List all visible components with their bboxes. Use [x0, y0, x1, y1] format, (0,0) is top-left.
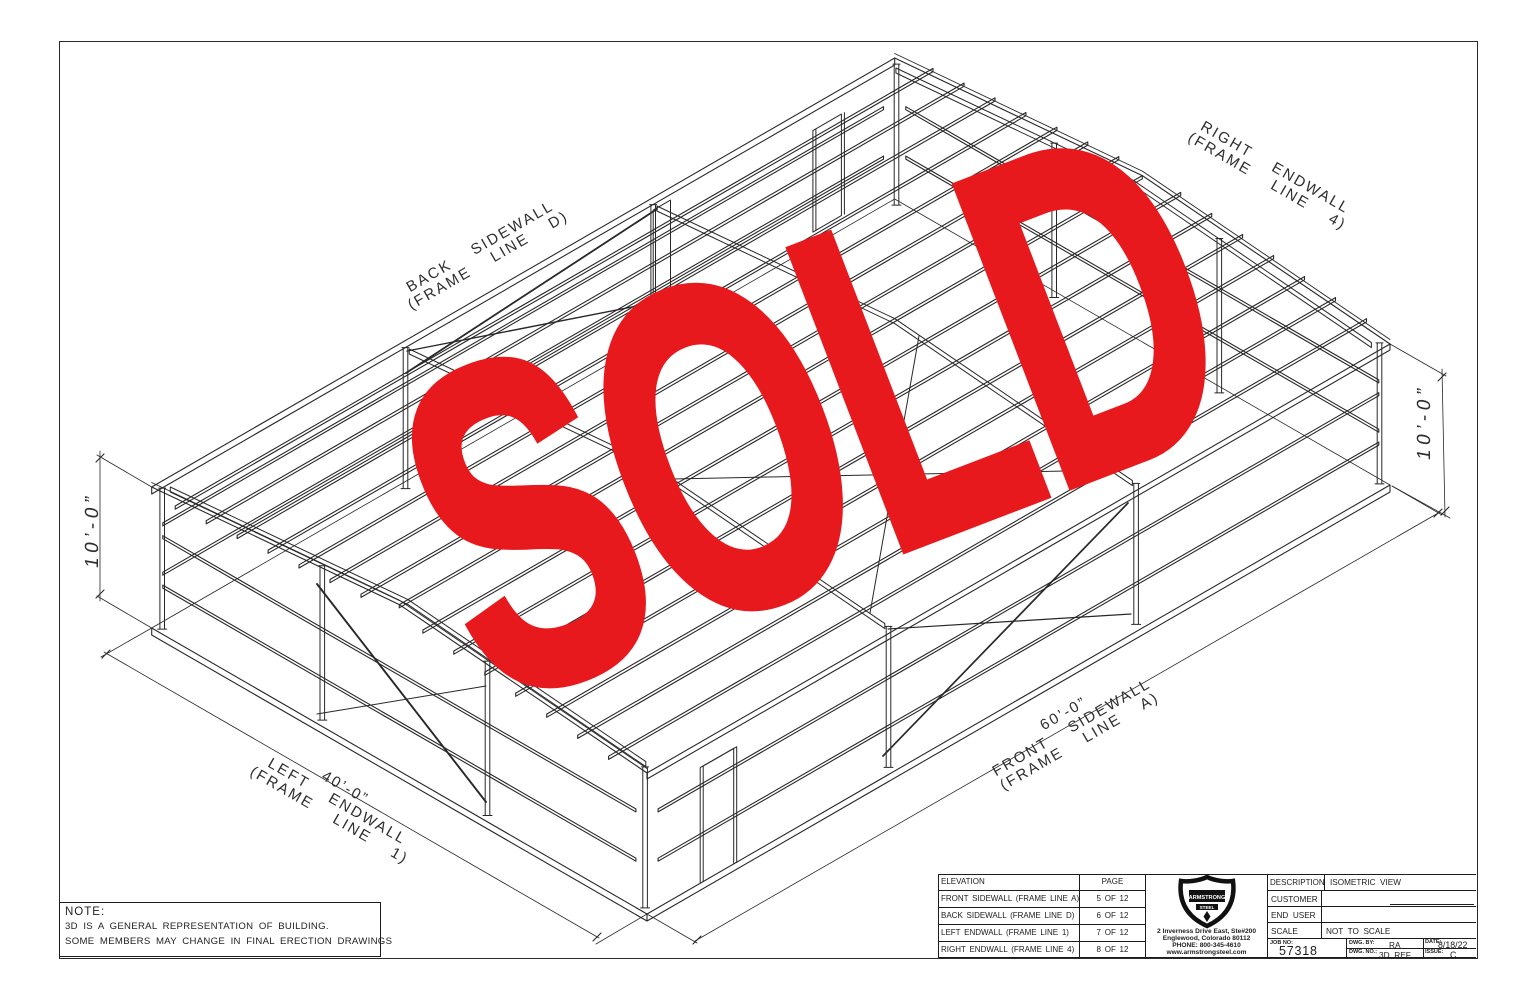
svg-text:ARMSTRONG: ARMSTRONG — [1189, 895, 1226, 901]
svg-text:STEEL: STEEL — [1200, 905, 1215, 910]
